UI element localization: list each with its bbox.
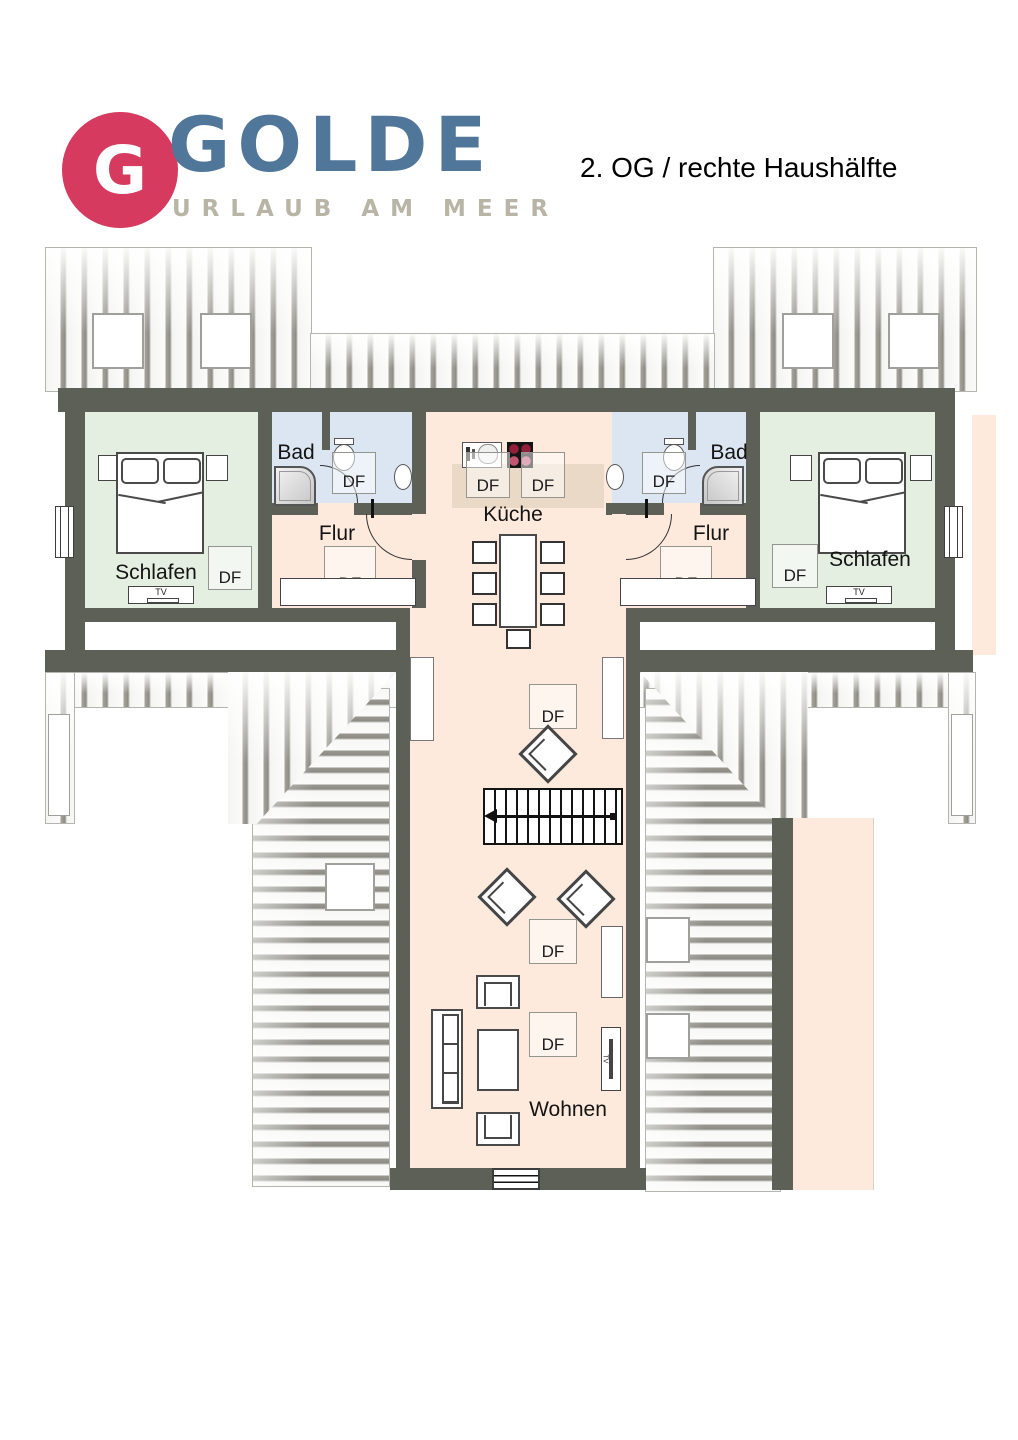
sideboard bbox=[620, 578, 756, 606]
chair bbox=[472, 541, 497, 564]
brand-tagline: URLAUB AM MEER bbox=[172, 196, 559, 222]
window-left bbox=[55, 506, 74, 558]
wall-bedroom-bottom-left bbox=[65, 608, 405, 622]
brand-logo-icon: G bbox=[62, 112, 178, 228]
df-label: DF bbox=[532, 476, 555, 496]
sofa-cushions bbox=[442, 1014, 459, 1104]
roof-window bbox=[646, 1013, 690, 1059]
tv-panel: TV bbox=[601, 1027, 621, 1091]
wall-bedroom-bottom-right bbox=[636, 608, 955, 622]
shower-icon bbox=[274, 466, 316, 506]
sink-icon bbox=[606, 464, 624, 490]
roof-window bbox=[48, 714, 70, 816]
stair-direction-arrow bbox=[496, 815, 612, 818]
chair bbox=[540, 603, 565, 626]
roof-window-marker: DF bbox=[529, 919, 577, 964]
roof-window-marker: DF bbox=[521, 452, 565, 498]
wall-top bbox=[58, 388, 955, 412]
room-label-bath-left: Bad bbox=[274, 441, 318, 465]
tv-label: TV bbox=[129, 587, 193, 597]
tv-stand: TV bbox=[128, 586, 194, 604]
armchair-cushion bbox=[487, 881, 520, 914]
shower-tray bbox=[279, 471, 311, 501]
room-label-hall-right: Flur bbox=[671, 522, 751, 546]
room-label-bedroom-left: Schlafen bbox=[86, 561, 226, 585]
roof-window-marker: DF bbox=[208, 546, 252, 590]
sofa bbox=[431, 1009, 463, 1109]
window-right bbox=[944, 506, 963, 558]
chair bbox=[472, 603, 497, 626]
df-label: DF bbox=[343, 472, 366, 492]
shower-icon bbox=[702, 466, 744, 506]
door-opening bbox=[318, 503, 354, 515]
pillow-icon bbox=[865, 458, 903, 484]
window-glazing-bars bbox=[949, 507, 958, 557]
armchair bbox=[476, 975, 520, 1009]
df-label: DF bbox=[477, 476, 500, 496]
chair bbox=[506, 629, 531, 649]
roof-window-marker: DF bbox=[529, 1012, 577, 1057]
roof-window bbox=[951, 714, 973, 816]
pillow-icon bbox=[121, 458, 159, 484]
wall-corridor-right bbox=[626, 608, 640, 1168]
neighbour-party-wall bbox=[772, 818, 793, 1190]
brand-name: GOLDE bbox=[168, 100, 493, 189]
logo-letter: G bbox=[93, 132, 147, 209]
bath-partition bbox=[688, 412, 696, 450]
window-glazing-bars bbox=[60, 507, 69, 557]
tv-label: TV bbox=[827, 587, 891, 597]
door-opening bbox=[612, 514, 626, 560]
wall-left-eave bbox=[45, 650, 403, 672]
chair bbox=[540, 541, 565, 564]
roof-window bbox=[200, 313, 252, 369]
room-label-kitchen: Küche bbox=[463, 503, 563, 527]
tv-screen-bar bbox=[609, 1039, 613, 1079]
tv-bar bbox=[845, 598, 877, 603]
sideboard bbox=[280, 578, 416, 606]
stair-arrow-start-dot bbox=[610, 813, 617, 820]
room-label-bedroom-right: Schlafen bbox=[800, 548, 940, 572]
wall-divider-bedroom-left bbox=[258, 412, 272, 622]
df-label: DF bbox=[219, 568, 242, 588]
armchair-cushion bbox=[566, 883, 599, 916]
coffee-table bbox=[477, 1029, 519, 1091]
nightstand bbox=[790, 455, 812, 481]
sink-icon bbox=[394, 464, 412, 490]
nightstand bbox=[910, 455, 932, 481]
stair-arrow-head-icon bbox=[484, 809, 497, 823]
shower-tray bbox=[707, 471, 739, 501]
neighbour-floor-strip bbox=[793, 818, 874, 1190]
page-title: 2. OG / rechte Haushälfte bbox=[580, 152, 898, 184]
roof-middle-band bbox=[310, 333, 715, 392]
roof-window-marker: DF bbox=[332, 452, 376, 494]
window-bottom bbox=[492, 1168, 540, 1190]
df-label: DF bbox=[542, 942, 565, 962]
roof-left-wing bbox=[45, 247, 312, 392]
room-label-hall-left: Flur bbox=[297, 522, 377, 546]
wall-right-eave bbox=[628, 650, 973, 672]
roof-window-marker: DF bbox=[529, 684, 577, 729]
nightstand bbox=[206, 455, 228, 481]
bath-partition bbox=[322, 412, 330, 450]
room-label-living: Wohnen bbox=[508, 1098, 628, 1122]
tv-label: TV bbox=[599, 1055, 609, 1064]
floorplan-page: G GOLDE URLAUB AM MEER 2. OG / rechte Ha… bbox=[0, 0, 1018, 1440]
neighbour-floor-edge bbox=[972, 415, 996, 655]
roof-window bbox=[782, 313, 834, 369]
df-label: DF bbox=[542, 1035, 565, 1055]
dining-table bbox=[499, 534, 537, 628]
roof-window bbox=[325, 863, 375, 911]
tv-bar bbox=[147, 598, 179, 603]
roof-window-marker: DF bbox=[642, 452, 686, 494]
tv-stand: TV bbox=[826, 586, 892, 604]
roof-window bbox=[646, 917, 690, 963]
sideboard bbox=[410, 657, 434, 741]
armchair-seat bbox=[484, 982, 512, 1006]
roof-window-marker: DF bbox=[466, 452, 510, 498]
roof-window bbox=[888, 313, 940, 369]
roof-window bbox=[92, 313, 144, 369]
pillow-icon bbox=[823, 458, 861, 484]
armchair-cushion bbox=[528, 738, 561, 771]
sideboard bbox=[602, 657, 624, 739]
shelf bbox=[601, 926, 623, 998]
door-opening bbox=[412, 514, 426, 560]
df-label: DF bbox=[653, 472, 676, 492]
wall-corridor-left bbox=[396, 608, 410, 1168]
room-label-bath-right: Bad bbox=[707, 441, 751, 465]
df-label: DF bbox=[542, 707, 565, 727]
pillow-icon bbox=[163, 458, 201, 484]
chair bbox=[472, 572, 497, 595]
chair bbox=[540, 572, 565, 595]
